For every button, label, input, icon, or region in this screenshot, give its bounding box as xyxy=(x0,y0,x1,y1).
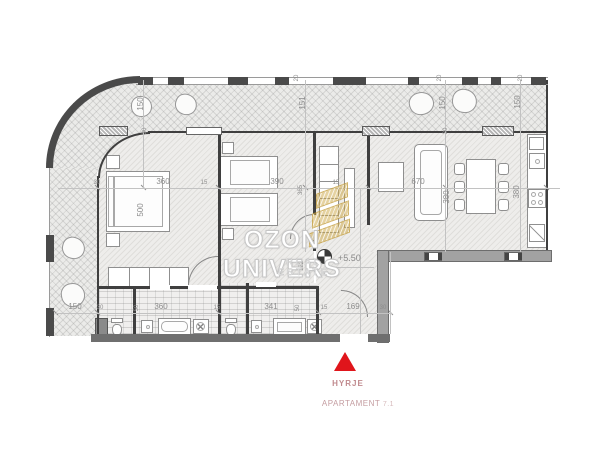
balcony-door-threshold xyxy=(482,126,514,136)
bed-pillow xyxy=(108,176,114,227)
railing-segment xyxy=(275,77,289,85)
entry-label: HYRJE xyxy=(326,379,370,388)
drum xyxy=(196,322,205,331)
dim-wall: 30 xyxy=(443,128,449,135)
dim-wall: 30 xyxy=(97,305,104,311)
door-opening xyxy=(150,285,170,290)
dimension-line xyxy=(58,188,560,189)
washing-machine-icon xyxy=(193,319,209,334)
bath1-partition-wall xyxy=(133,289,136,334)
railing-segment xyxy=(462,77,478,85)
entry-arrow-icon xyxy=(334,352,356,371)
dining-chair xyxy=(498,199,509,211)
dim-balcony-depth: 151 xyxy=(299,96,307,109)
mattress xyxy=(230,197,270,222)
dim-bedroom1-width: 360 xyxy=(156,178,169,186)
column-tick xyxy=(505,253,509,260)
dim-balcony-depth: 150 xyxy=(137,97,145,110)
dimension-line xyxy=(55,313,392,314)
curved-exterior-railing xyxy=(46,76,140,168)
structural-wall-vertical xyxy=(377,250,389,343)
basin-drain xyxy=(146,325,150,329)
railing-segment xyxy=(168,77,184,85)
dim-entry-width: 169 xyxy=(346,303,359,311)
burner xyxy=(538,192,543,197)
bathtub-basin xyxy=(161,321,188,332)
kitchen-sink xyxy=(529,153,545,169)
dim-wall: 30 xyxy=(380,305,387,311)
dim-living-depth: 380 xyxy=(443,190,451,203)
column-tick xyxy=(425,253,429,260)
dim-wall: 15 xyxy=(201,180,208,186)
apartment-label-text: APARTAMENT xyxy=(322,399,380,408)
shelf-divider xyxy=(320,164,338,165)
washbasin xyxy=(141,320,153,333)
railing-segment xyxy=(491,77,501,85)
dim-wall: 50 xyxy=(295,305,301,312)
wardrobe-divider xyxy=(169,268,170,286)
balcony-door-threshold xyxy=(362,126,390,136)
vanity-sink xyxy=(277,322,302,332)
balcony-top-floor xyxy=(140,84,548,131)
column-tick xyxy=(438,253,442,260)
right-exterior-wall xyxy=(546,80,548,252)
dim-bedroom2-width: 390 xyxy=(270,178,283,186)
apartment-label: APARTAMENT 7.1 xyxy=(310,399,406,408)
railing-segment xyxy=(408,77,419,85)
apartment-number: 7.1 xyxy=(383,401,394,408)
kitchen-faucet xyxy=(529,137,544,150)
dim-wall: 15 xyxy=(214,305,221,311)
dim-bedroom1-depth: 500 xyxy=(137,203,145,216)
dim-kitchen-depth: 380 xyxy=(513,185,521,198)
washbasin xyxy=(251,320,262,333)
toilet xyxy=(225,318,237,323)
balcony-door-threshold xyxy=(99,126,128,136)
column-marker xyxy=(504,252,522,261)
bed-pillow xyxy=(222,142,234,154)
extension-line xyxy=(390,252,391,334)
balcony-door-panel xyxy=(186,127,222,135)
dim-balcony-depth: 150 xyxy=(439,96,447,109)
burner xyxy=(538,200,543,205)
railing-segment xyxy=(138,77,153,85)
railing-segment xyxy=(228,77,248,85)
railing-segment xyxy=(46,235,54,262)
dim-wall: 30 xyxy=(142,128,148,135)
structural-wall-horizontal xyxy=(377,250,552,262)
dining-chair xyxy=(498,181,509,193)
mattress xyxy=(230,160,270,185)
dining-chair xyxy=(454,199,465,211)
dim-rail: 20 xyxy=(437,75,443,82)
dim-rail: 20 xyxy=(518,75,524,82)
railing-segment xyxy=(333,77,366,85)
dining-table xyxy=(466,159,496,214)
dim-balcony-left-width: 150 xyxy=(68,303,81,311)
toilet xyxy=(111,318,123,323)
dim-wall: 50 xyxy=(134,305,140,312)
dim-balcony-depth: 150 xyxy=(514,95,522,108)
dim-hall: 365 xyxy=(298,185,304,195)
washing-machine-icon xyxy=(307,319,322,334)
wardrobe-divider xyxy=(129,268,130,286)
entry-door-opening xyxy=(340,334,368,343)
railing-segment xyxy=(531,77,546,85)
column-tick xyxy=(518,253,522,260)
burner xyxy=(531,192,536,197)
nightstand xyxy=(106,233,120,247)
dim-bath1-width: 360 xyxy=(154,303,167,311)
dim-wall: 30 xyxy=(94,180,101,186)
floor-plan: 150 151 20 150 20 150 20 500 365 122 380… xyxy=(0,0,600,450)
door-opening xyxy=(188,285,217,290)
railing-segment xyxy=(46,308,54,336)
sink-drain xyxy=(535,159,540,164)
hall-living-wall xyxy=(367,131,370,225)
dining-chair xyxy=(454,181,465,193)
wardrobe-divider xyxy=(149,268,150,286)
bath2-partition-wall xyxy=(246,283,249,334)
burner xyxy=(531,200,536,205)
dim-living-width: 670 xyxy=(411,178,424,186)
dim-wall: 15 xyxy=(321,305,328,311)
dim-wall: 15 xyxy=(333,180,340,186)
watermark-subtitle: REAL ESTATE xyxy=(268,257,340,277)
dim-bath2-width: 341 xyxy=(264,303,277,311)
dining-chair xyxy=(498,163,509,175)
wardrobe xyxy=(108,267,189,287)
stove-icon xyxy=(528,189,546,208)
column-marker xyxy=(424,252,442,261)
fridge xyxy=(529,224,545,242)
dining-chair xyxy=(454,163,465,175)
basin-drain xyxy=(255,325,259,329)
dim-rail: 20 xyxy=(294,75,300,82)
